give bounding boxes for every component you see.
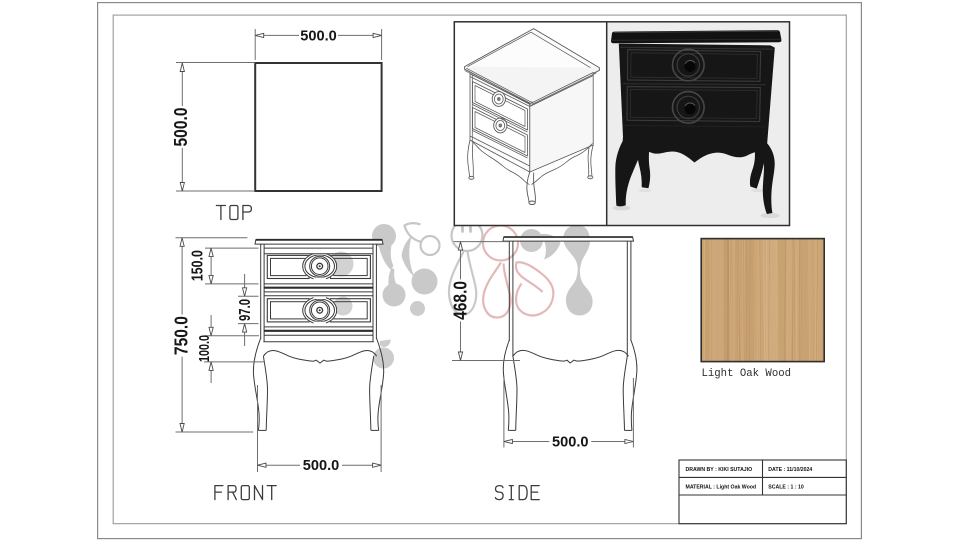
svg-text:DRAWN BY : KIKI SUTAJIO: DRAWN BY : KIKI SUTAJIO [686,467,753,473]
svg-text:150.0: 150.0 [189,250,206,281]
svg-text:100.0: 100.0 [196,335,213,362]
svg-text:500.0: 500.0 [552,435,589,451]
svg-text:SCALE : 1 : 10: SCALE : 1 : 10 [768,484,804,490]
svg-text:DATE : 11/10/2024: DATE : 11/10/2024 [768,467,812,473]
svg-text:MATERIAL : Light Oak Wood: MATERIAL : Light Oak Wood [686,484,757,490]
svg-text:500.0: 500.0 [300,28,337,44]
svg-text:500.0: 500.0 [170,108,191,147]
svg-text:500.0: 500.0 [303,458,340,474]
svg-text:750.0: 750.0 [171,316,192,355]
svg-text:Light Oak Wood: Light Oak Wood [702,368,792,380]
svg-text:97.0: 97.0 [237,299,254,321]
svg-text:468.0: 468.0 [450,281,471,320]
